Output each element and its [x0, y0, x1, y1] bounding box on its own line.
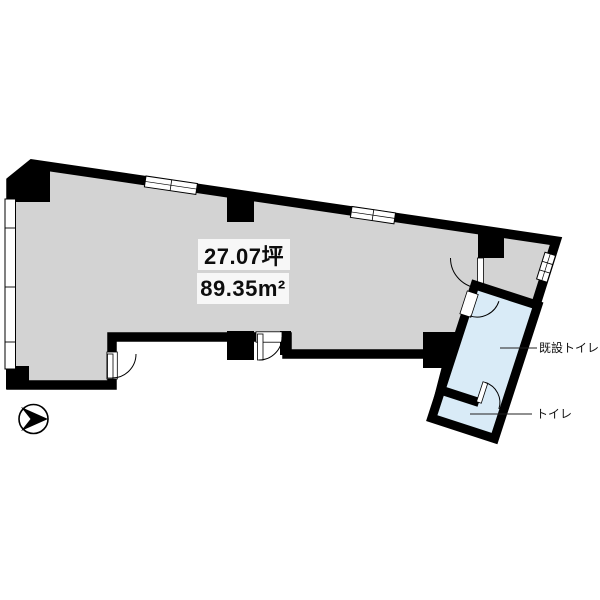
pillar-bottom — [227, 331, 254, 360]
door-recess — [256, 332, 282, 360]
window-band-left — [5, 199, 16, 369]
door-entrance — [107, 352, 136, 379]
floor-plan: 27.07坪 89.35m² 既設トイレ トイレ — [0, 0, 600, 600]
area-label-tsubo: 27.07坪 — [198, 239, 290, 270]
room-label-existing-toilet: 既設トイレ — [539, 341, 599, 355]
floor-plan-drawing — [0, 0, 600, 600]
corner-block-top-left — [7, 161, 50, 202]
vestibule-partition-stub — [478, 232, 504, 258]
area-label-square-meters: 89.35m² — [197, 273, 289, 304]
area-sqm-text: 89.35m² — [200, 276, 285, 302]
room-label-toilet: トイレ — [536, 407, 572, 421]
north-arrow-icon — [19, 405, 48, 434]
area-tsubo-text: 27.07坪 — [204, 239, 284, 271]
pillar-top — [227, 195, 254, 222]
